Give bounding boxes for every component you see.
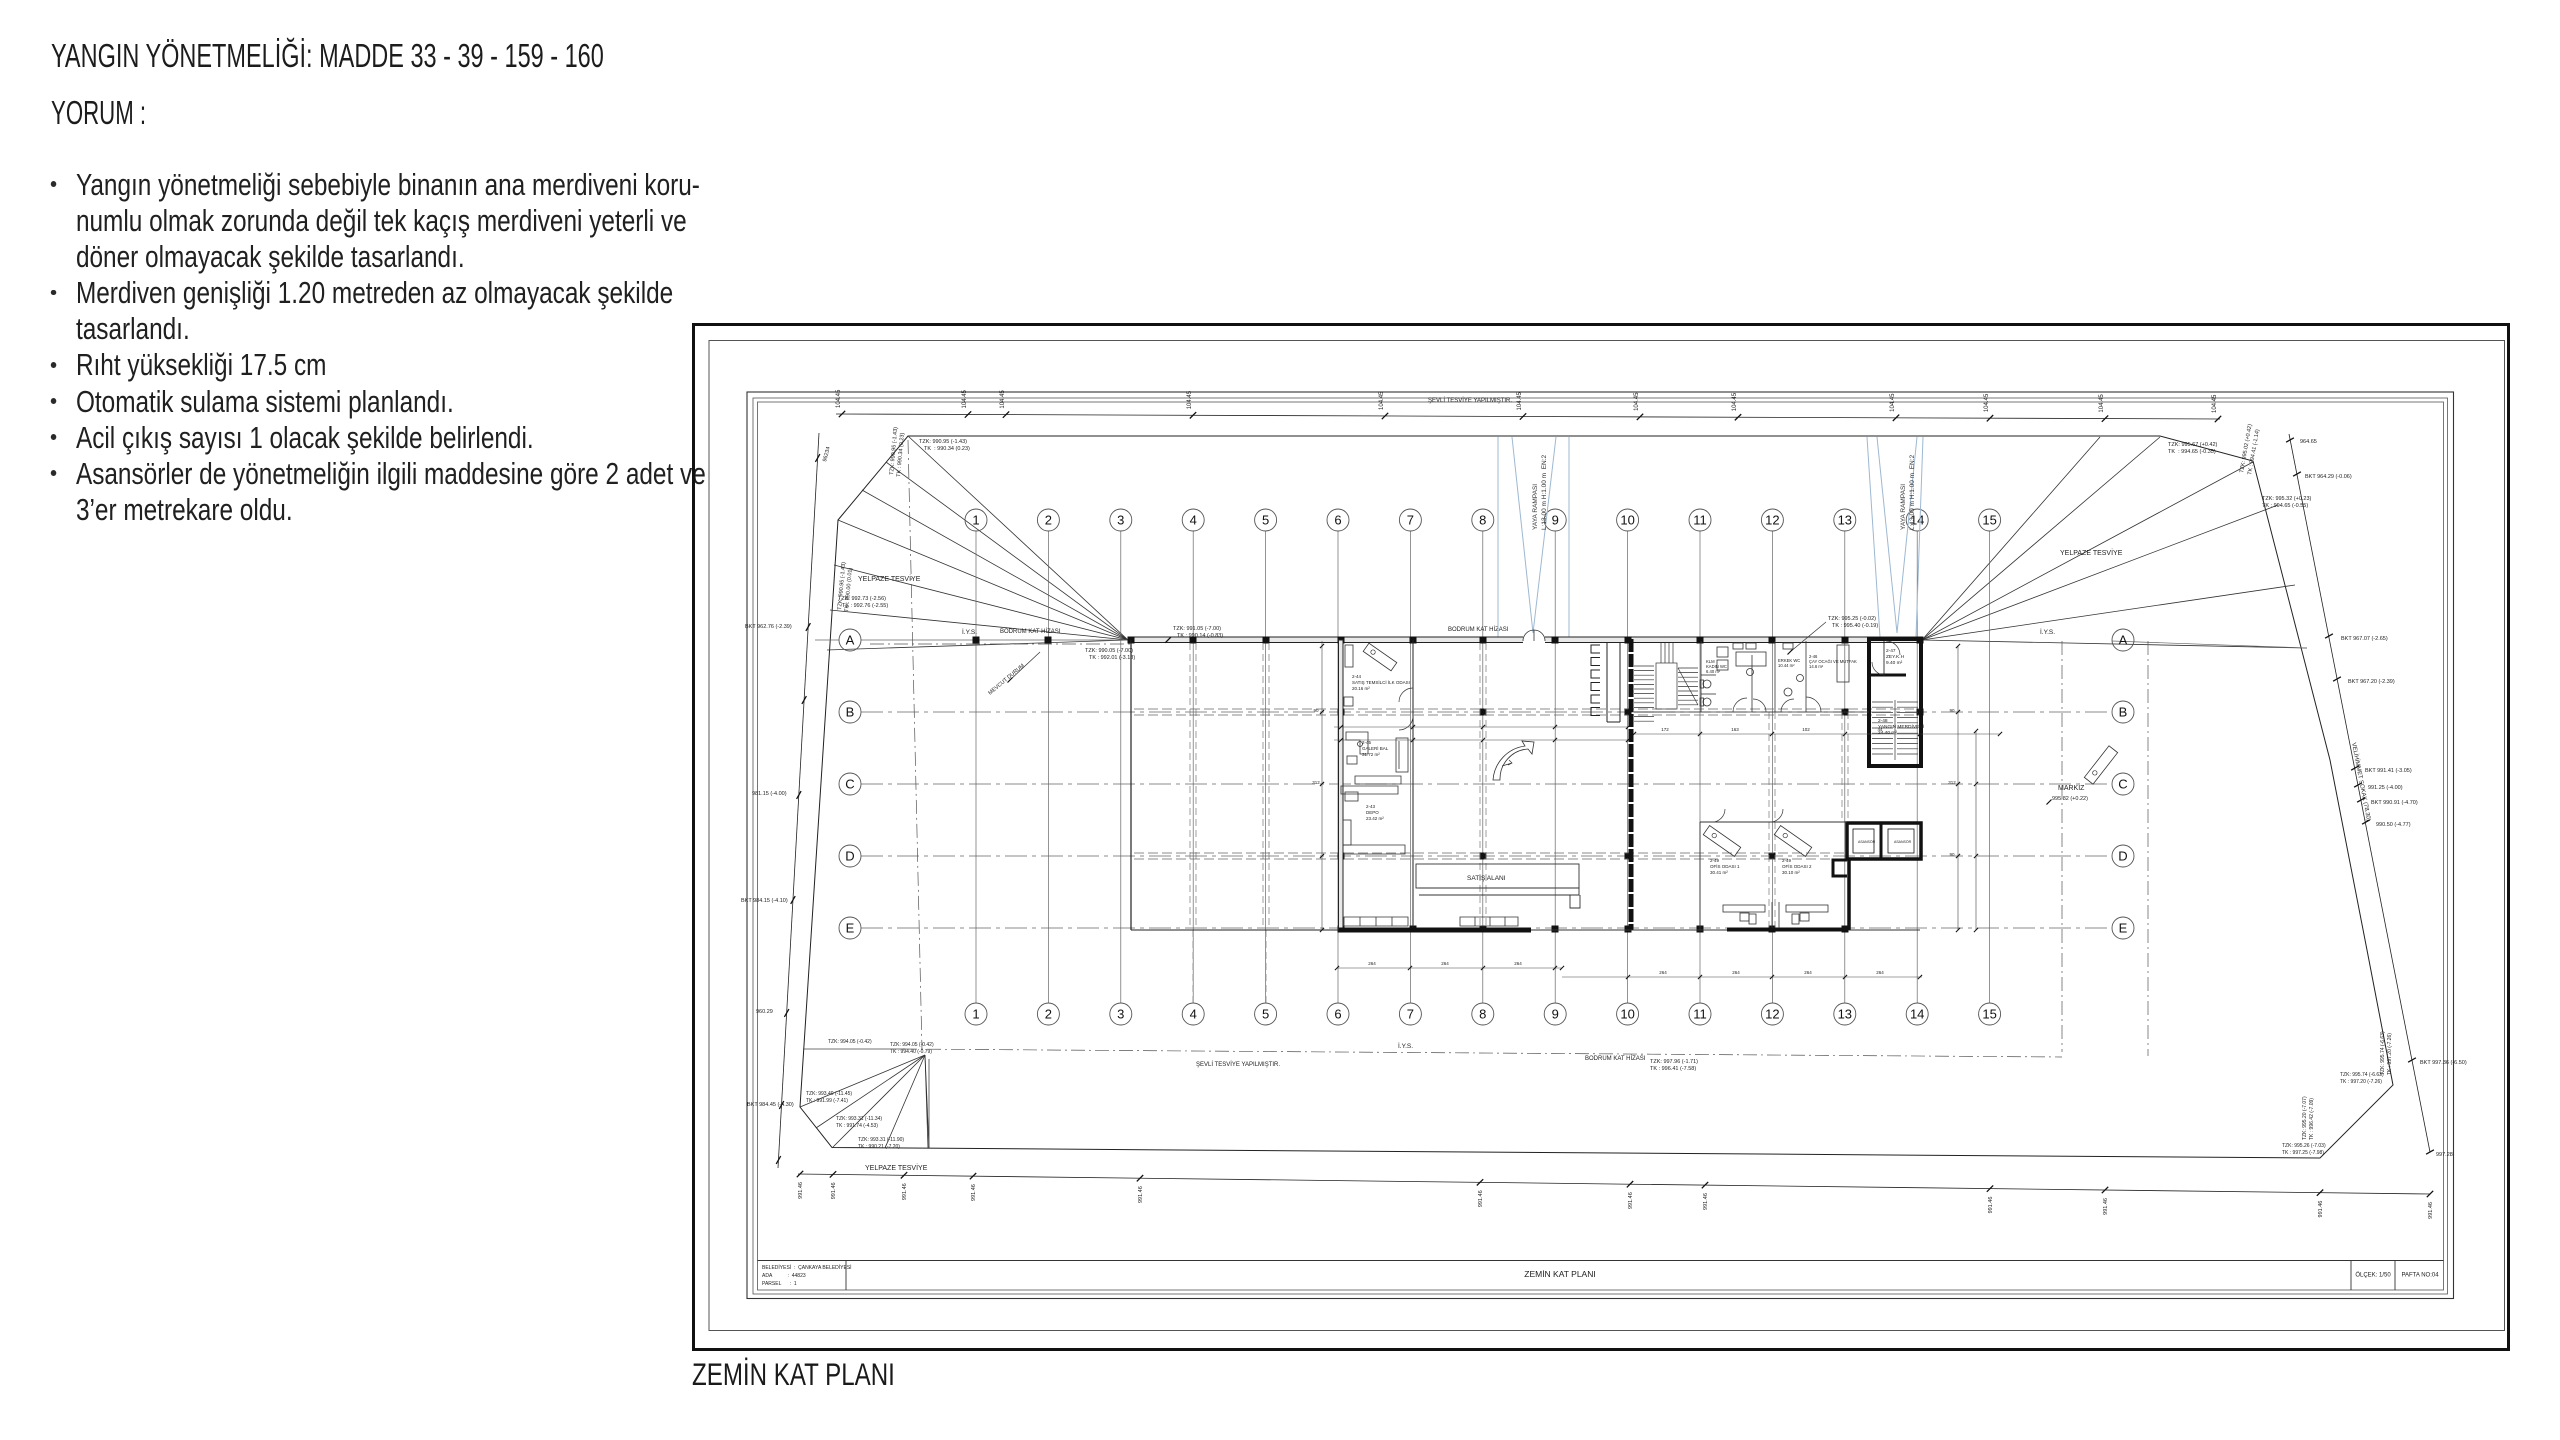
svg-text:23.42 m²: 23.42 m² xyxy=(1366,816,1384,821)
svg-text:ZEMİN KAT PLANI: ZEMİN KAT PLANI xyxy=(1524,1269,1595,1279)
svg-text:TZK: 995.74 (-6.63): TZK: 995.74 (-6.63) xyxy=(2380,1031,2386,1075)
svg-text:C: C xyxy=(2118,777,2127,792)
svg-text:TK : 991.99 (-7.41): TK : 991.99 (-7.41) xyxy=(806,1098,848,1104)
svg-text:12: 12 xyxy=(1765,1007,1779,1022)
svg-text:İ.Y.S.: İ.Y.S. xyxy=(962,627,977,636)
svg-text:9.40 m²: 9.40 m² xyxy=(1886,660,1903,666)
svg-text:BKT 991.41 (-3.05): BKT 991.41 (-3.05) xyxy=(2365,768,2412,774)
svg-text:1: 1 xyxy=(972,1007,979,1022)
svg-text:9: 9 xyxy=(1552,513,1559,528)
svg-text:TZK: 995.32 (+0.23): TZK: 995.32 (+0.23) xyxy=(2262,496,2312,502)
svg-text:L:13.00 m H:1.00 m EN:2: L:13.00 m H:1.00 m EN:2 xyxy=(1909,454,1916,530)
svg-text:104.45: 104.45 xyxy=(962,389,968,408)
svg-text:104.45: 104.45 xyxy=(1732,392,1738,411)
svg-text:14: 14 xyxy=(1910,1007,1924,1022)
svg-text:312: 312 xyxy=(1312,780,1320,785)
svg-text:TK : 996.42 (-7.09): TK : 996.42 (-7.09) xyxy=(2309,1098,2315,1140)
svg-text:SATIŞ ALANI: SATIŞ ALANI xyxy=(1467,875,1506,882)
svg-text:TZK: 995.74 (-6.63): TZK: 995.74 (-6.63) xyxy=(2340,1072,2384,1078)
svg-text:991.46: 991.46 xyxy=(1988,1197,1994,1214)
svg-text:YAYA RAMPASI: YAYA RAMPASI xyxy=(1532,484,1539,530)
svg-text:BKT 984.15 (-4.10): BKT 984.15 (-4.10) xyxy=(741,898,788,904)
svg-text:1: 1 xyxy=(972,513,979,528)
svg-text:YAYA RAMPASI: YAYA RAMPASI xyxy=(1900,484,1907,530)
svg-text:SATIŞ TEMSİLCİ İLK ODASI: SATIŞ TEMSİLCİ İLK ODASI xyxy=(1352,679,1410,685)
svg-text:981.15 (-4.00): 981.15 (-4.00) xyxy=(752,791,787,797)
svg-text:15: 15 xyxy=(1982,513,1996,528)
svg-text:90: 90 xyxy=(1949,852,1955,857)
svg-text:104.45: 104.45 xyxy=(2099,394,2105,413)
svg-text:14.6 m²: 14.6 m² xyxy=(1809,664,1824,669)
svg-text:5: 5 xyxy=(1262,513,1269,528)
svg-text:TZK: 995.67 (+0.42): TZK: 995.67 (+0.42) xyxy=(2168,442,2218,448)
svg-text:2-48: 2-48 xyxy=(1878,718,1888,724)
svg-text:PARSEL : 1: PARSEL : 1 xyxy=(762,1281,797,1287)
svg-text:12: 12 xyxy=(1765,513,1779,528)
svg-text:991.46: 991.46 xyxy=(1138,1186,1144,1203)
svg-text:10.44 m²: 10.44 m² xyxy=(1778,663,1795,668)
svg-text:TZK: 993.31 (-11.34): TZK: 993.31 (-11.34) xyxy=(836,1116,882,1122)
svg-text:264: 264 xyxy=(1368,961,1376,966)
svg-text:991.46: 991.46 xyxy=(1628,1192,1634,1209)
svg-text:TK : 992.76 (-2.55): TK : 992.76 (-2.55) xyxy=(842,603,888,609)
svg-text:991.46: 991.46 xyxy=(798,1182,804,1199)
svg-text:E: E xyxy=(846,921,855,936)
svg-text:ZEMİN KAT PLANI: ZEMİN KAT PLANI xyxy=(692,1357,895,1392)
svg-text:3: 3 xyxy=(1117,513,1124,528)
svg-text:ASANSÖR: ASANSÖR xyxy=(1894,840,1912,844)
svg-text:312: 312 xyxy=(1948,780,1956,785)
svg-text:104.45: 104.45 xyxy=(1984,393,1990,412)
svg-text:991.46: 991.46 xyxy=(2103,1198,2109,1215)
svg-text:A: A xyxy=(846,633,855,648)
svg-text:TZK: 993.31 (-11.90): TZK: 993.31 (-11.90) xyxy=(858,1137,904,1143)
svg-text:OFİS ODASI 1: OFİS ODASI 1 xyxy=(1710,863,1740,869)
svg-text:991.46: 991.46 xyxy=(1478,1190,1484,1207)
svg-text:GALERİ BAL: GALERİ BAL xyxy=(1362,745,1389,751)
svg-text:2-45: 2-45 xyxy=(1362,740,1372,745)
svg-text:MEVCUT DURUM: MEVCUT DURUM xyxy=(987,663,1026,697)
svg-text:102: 102 xyxy=(1802,727,1810,732)
svg-text:ŞEVLİ TESVİYE YAPILMIŞTIR.: ŞEVLİ TESVİYE YAPILMIŞTIR. xyxy=(1428,397,1512,404)
svg-text:7: 7 xyxy=(1407,1007,1414,1022)
svg-text:991.46: 991.46 xyxy=(902,1183,908,1200)
svg-text:997.28: 997.28 xyxy=(2436,1152,2453,1158)
svg-text:ÖLÇEK: 1/50: ÖLÇEK: 1/50 xyxy=(2355,1272,2391,1279)
svg-text:104.45: 104.45 xyxy=(836,389,842,408)
svg-text:PAFTA NO:04: PAFTA NO:04 xyxy=(2401,1273,2439,1279)
svg-text:960.29: 960.29 xyxy=(756,1009,773,1015)
svg-text:B: B xyxy=(2119,705,2128,720)
svg-text:TK : 995.40 (-0.19): TK : 995.40 (-0.19) xyxy=(1832,623,1878,629)
svg-text:991.46: 991.46 xyxy=(831,1182,837,1199)
svg-text:TZK: 990.95 (-1.43): TZK: 990.95 (-1.43) xyxy=(919,439,967,445)
svg-text:11: 11 xyxy=(1693,513,1707,528)
svg-text:DEPO: DEPO xyxy=(1366,810,1379,815)
svg-text:BELEDİYESİ : ÇANKAYA BELEDİY: BELEDİYESİ : ÇANKAYA BELEDİYESİ xyxy=(762,1264,852,1271)
svg-text:TK : 994.40 (-0.79): TK : 994.40 (-0.79) xyxy=(890,1049,932,1055)
svg-text:BODRUM KAT HİZASI: BODRUM KAT HİZASI xyxy=(1000,628,1061,635)
svg-text:TK : 994.65 (-0.35): TK : 994.65 (-0.35) xyxy=(2168,449,2216,455)
svg-text:L:13.00 m H:1.00 m EN:2: L:13.00 m H:1.00 m EN:2 xyxy=(1541,454,1548,530)
svg-text:OFİS ODASI 2: OFİS ODASI 2 xyxy=(1782,863,1812,869)
svg-text:991.46: 991.46 xyxy=(971,1184,977,1201)
svg-text:ADA : 44823: ADA : 44823 xyxy=(762,1273,806,1279)
svg-text:30.41 m²: 30.41 m² xyxy=(1710,870,1728,875)
svg-text:BKT 967.07 (-2.65): BKT 967.07 (-2.65) xyxy=(2341,636,2388,642)
svg-text:44: 44 xyxy=(1877,727,1883,732)
svg-text:TZK: 991.05 (-7.00): TZK: 991.05 (-7.00) xyxy=(1173,626,1221,632)
svg-text:2-47: 2-47 xyxy=(1886,648,1896,654)
svg-text:90: 90 xyxy=(1313,708,1319,713)
svg-text:BKT 990.91 (-4.70): BKT 990.91 (-4.70) xyxy=(2371,800,2418,806)
svg-text:TK : 997.20 (-7.26): TK : 997.20 (-7.26) xyxy=(2340,1079,2382,1085)
svg-text:D: D xyxy=(2118,849,2127,864)
svg-text:6: 6 xyxy=(1334,513,1341,528)
svg-text:YANGIN MERDİVENİ: YANGIN MERDİVENİ xyxy=(1878,723,1924,730)
svg-text:TZK: 993.40 (-11.45): TZK: 993.40 (-11.45) xyxy=(806,1091,852,1097)
svg-text:991.46: 991.46 xyxy=(2428,1202,2434,1219)
svg-text:264: 264 xyxy=(1732,970,1740,975)
svg-text:TZK: 995.25 (-0.02): TZK: 995.25 (-0.02) xyxy=(1828,616,1876,622)
svg-text:YELPAZE TESVİYE: YELPAZE TESVİYE xyxy=(2060,548,2123,557)
svg-text:TK : 990.14 (-0.83): TK : 990.14 (-0.83) xyxy=(1177,633,1223,639)
svg-text:4: 4 xyxy=(1190,1007,1197,1022)
svg-text:264: 264 xyxy=(1514,961,1522,966)
svg-text:TK : 997.25 (-7.98): TK : 997.25 (-7.98) xyxy=(2282,1150,2324,1156)
svg-text:ŞEVLİ TESVİYE YAPILMIŞTIR.: ŞEVLİ TESVİYE YAPILMIŞTIR. xyxy=(1196,1061,1280,1068)
svg-text:TK : 991.74 (-4.53): TK : 991.74 (-4.53) xyxy=(836,1123,878,1129)
svg-text:6: 6 xyxy=(1334,1007,1341,1022)
svg-text:2-49: 2-49 xyxy=(1782,858,1792,863)
svg-text:10: 10 xyxy=(1620,513,1634,528)
svg-text:2-49: 2-49 xyxy=(1710,858,1720,863)
svg-text:ASANSÖR: ASANSÖR xyxy=(1858,840,1876,844)
svg-text:6.40 m²: 6.40 m² xyxy=(1706,669,1721,674)
svg-text:TZK: 995.26 (-7.03): TZK: 995.26 (-7.03) xyxy=(2282,1143,2326,1149)
svg-text:104.45: 104.45 xyxy=(2212,394,2218,413)
svg-text:264: 264 xyxy=(1659,970,1667,975)
svg-text:15: 15 xyxy=(1982,1007,1996,1022)
svg-text:TK : 990.34 (0.23): TK : 990.34 (0.23) xyxy=(924,446,970,452)
svg-text:96234: 96234 xyxy=(822,446,832,462)
svg-text:5: 5 xyxy=(1262,1007,1269,1022)
svg-text:BKT 984.45 (-4.30): BKT 984.45 (-4.30) xyxy=(747,1102,794,1108)
svg-text:TK : 997.20 (-7.26): TK : 997.20 (-7.26) xyxy=(2387,1033,2393,1075)
svg-text:C: C xyxy=(845,777,854,792)
svg-text:264: 264 xyxy=(1441,961,1449,966)
svg-text:13: 13 xyxy=(1838,513,1852,528)
svg-text:10: 10 xyxy=(1620,1007,1634,1022)
svg-text:991.46: 991.46 xyxy=(1703,1193,1709,1210)
svg-text:2-44: 2-44 xyxy=(1352,674,1362,679)
svg-text:991.25 (-4.00): 991.25 (-4.00) xyxy=(2368,785,2403,791)
svg-text:BKT 967.20 (-2.39): BKT 967.20 (-2.39) xyxy=(2348,679,2395,685)
svg-text:104.45: 104.45 xyxy=(1517,391,1523,410)
svg-text:ZEY.K.H: ZEY.K.H xyxy=(1886,654,1905,660)
svg-text:11: 11 xyxy=(1693,1007,1707,1022)
svg-text:BKT 962.76 (-2.39): BKT 962.76 (-2.39) xyxy=(745,624,792,630)
svg-text:TK : 992.01 (-3.18): TK : 992.01 (-3.18) xyxy=(1089,655,1135,661)
svg-text:BODRUM KAT HİZASI: BODRUM KAT HİZASI xyxy=(1585,1055,1646,1062)
svg-text:BKT 964.29 (-0.06): BKT 964.29 (-0.06) xyxy=(2305,474,2352,480)
svg-text:7: 7 xyxy=(1407,513,1414,528)
svg-text:104.45: 104.45 xyxy=(1890,393,1896,412)
svg-text:D: D xyxy=(845,849,854,864)
svg-text:104.45: 104.45 xyxy=(1187,390,1193,409)
svg-text:İ.Y.S.: İ.Y.S. xyxy=(2040,627,2055,636)
svg-text:E: E xyxy=(2119,921,2128,936)
svg-text:964.65: 964.65 xyxy=(2300,439,2317,445)
svg-text:TK : 990.21 (-7.20): TK : 990.21 (-7.20) xyxy=(858,1144,900,1150)
svg-text:991.46: 991.46 xyxy=(2318,1201,2324,1218)
svg-text:8: 8 xyxy=(1479,1007,1486,1022)
svg-text:TK : 996.41 (-7.58): TK : 996.41 (-7.58) xyxy=(1650,1066,1696,1072)
svg-text:104.45: 104.45 xyxy=(1634,392,1640,411)
svg-text:31.72 m²: 31.72 m² xyxy=(1362,752,1380,757)
svg-text:163: 163 xyxy=(1731,727,1739,732)
svg-text:TZK: 994.05 (-0.42): TZK: 994.05 (-0.42) xyxy=(828,1039,872,1045)
svg-text:TZK: 990.05 (-7.00): TZK: 990.05 (-7.00) xyxy=(1085,648,1133,654)
svg-text:8: 8 xyxy=(1479,513,1486,528)
svg-text:13: 13 xyxy=(1838,1007,1852,1022)
svg-text:9: 9 xyxy=(1552,1007,1559,1022)
svg-text:2: 2 xyxy=(1045,513,1052,528)
svg-text:YELPAZE TESVİYE: YELPAZE TESVİYE xyxy=(865,1163,928,1172)
svg-text:990.50 (-4.77): 990.50 (-4.77) xyxy=(2376,822,2411,828)
svg-text:104.45: 104.45 xyxy=(1000,390,1006,409)
svg-text:2-43: 2-43 xyxy=(1366,804,1376,809)
svg-text:A: A xyxy=(2119,633,2128,648)
svg-text:264: 264 xyxy=(1804,970,1812,975)
svg-text:104.45: 104.45 xyxy=(1379,391,1385,410)
svg-text:30.10 m²: 30.10 m² xyxy=(1782,870,1800,875)
svg-text:90: 90 xyxy=(1949,708,1955,713)
svg-text:İ.Y.S.: İ.Y.S. xyxy=(1398,1041,1413,1050)
svg-text:4: 4 xyxy=(1190,513,1197,528)
svg-text:TZK: 992.73 (-2.56): TZK: 992.73 (-2.56) xyxy=(838,596,886,602)
svg-text:995.82 (+0.22): 995.82 (+0.22) xyxy=(2052,796,2088,802)
svg-text:TZK: 995.20 (-7.07): TZK: 995.20 (-7.07) xyxy=(2302,1096,2308,1140)
svg-text:TZK: 994.05 (-0.42): TZK: 994.05 (-0.42) xyxy=(890,1042,934,1048)
svg-text:TZK: 997.96 (-1.71): TZK: 997.96 (-1.71) xyxy=(1650,1059,1698,1065)
svg-text:172: 172 xyxy=(1661,727,1669,732)
svg-text:20.16 m²: 20.16 m² xyxy=(1352,686,1370,691)
svg-text:BODRUM KAT HİZASI: BODRUM KAT HİZASI xyxy=(1448,626,1509,633)
svg-text:BKT 997.36 (-6.50): BKT 997.36 (-6.50) xyxy=(2420,1060,2467,1066)
svg-text:VELİHİMMET SOKAK (78.30): VELİHİMMET SOKAK (78.30) xyxy=(2350,742,2372,821)
svg-text:2: 2 xyxy=(1045,1007,1052,1022)
svg-text:B: B xyxy=(846,705,855,720)
svg-text:264: 264 xyxy=(1876,970,1884,975)
svg-text:3: 3 xyxy=(1117,1007,1124,1022)
